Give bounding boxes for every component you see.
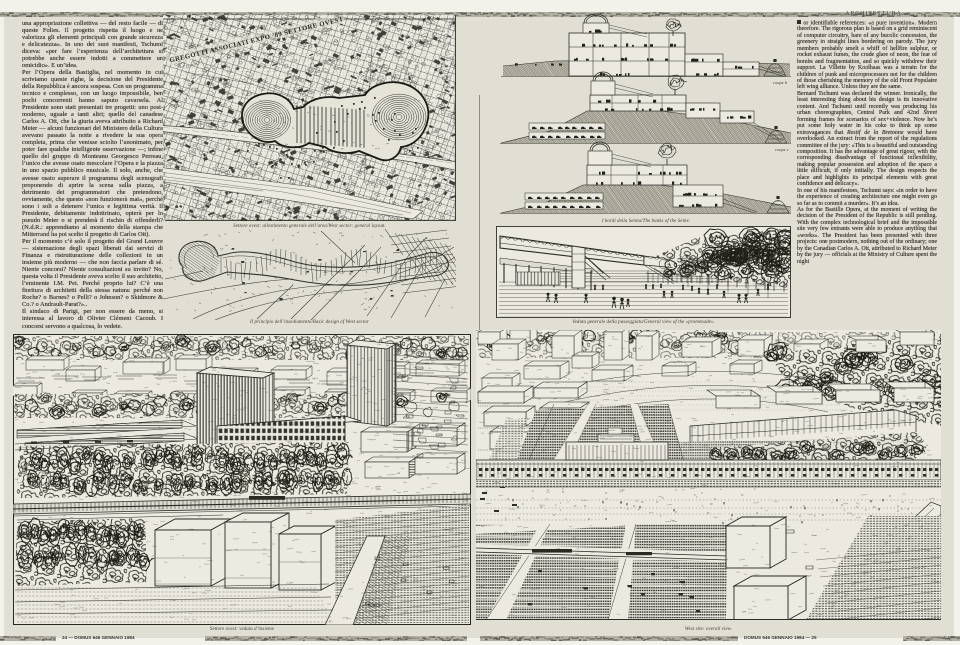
svg-text:coupe c: coupe c — [775, 147, 789, 152]
svg-text:coupe b: coupe b — [773, 80, 788, 85]
